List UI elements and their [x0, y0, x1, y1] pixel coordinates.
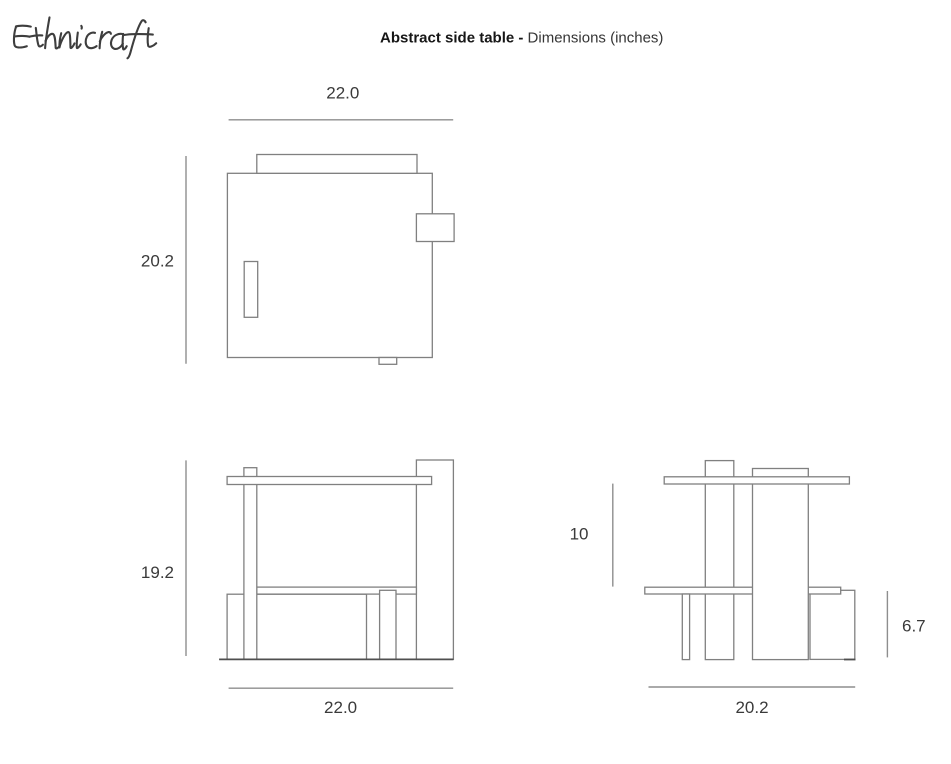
svg-text:Abstract side table - Dimensio: Abstract side table - Dimensions (inches… [380, 29, 663, 46]
svg-text:22.0: 22.0 [324, 698, 357, 717]
svg-text:6.7: 6.7 [902, 617, 926, 636]
svg-text:10: 10 [570, 525, 589, 544]
svg-text:20.2: 20.2 [735, 698, 768, 717]
svg-text:19.2: 19.2 [141, 563, 174, 582]
svg-text:20.2: 20.2 [141, 252, 174, 271]
svg-text:22.0: 22.0 [326, 84, 359, 103]
